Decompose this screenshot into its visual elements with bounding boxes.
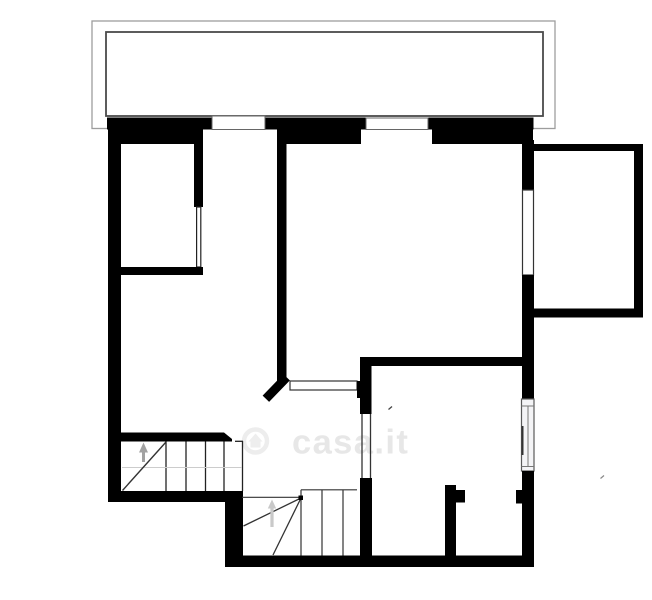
svg-text:casa.it: casa.it (292, 424, 409, 462)
